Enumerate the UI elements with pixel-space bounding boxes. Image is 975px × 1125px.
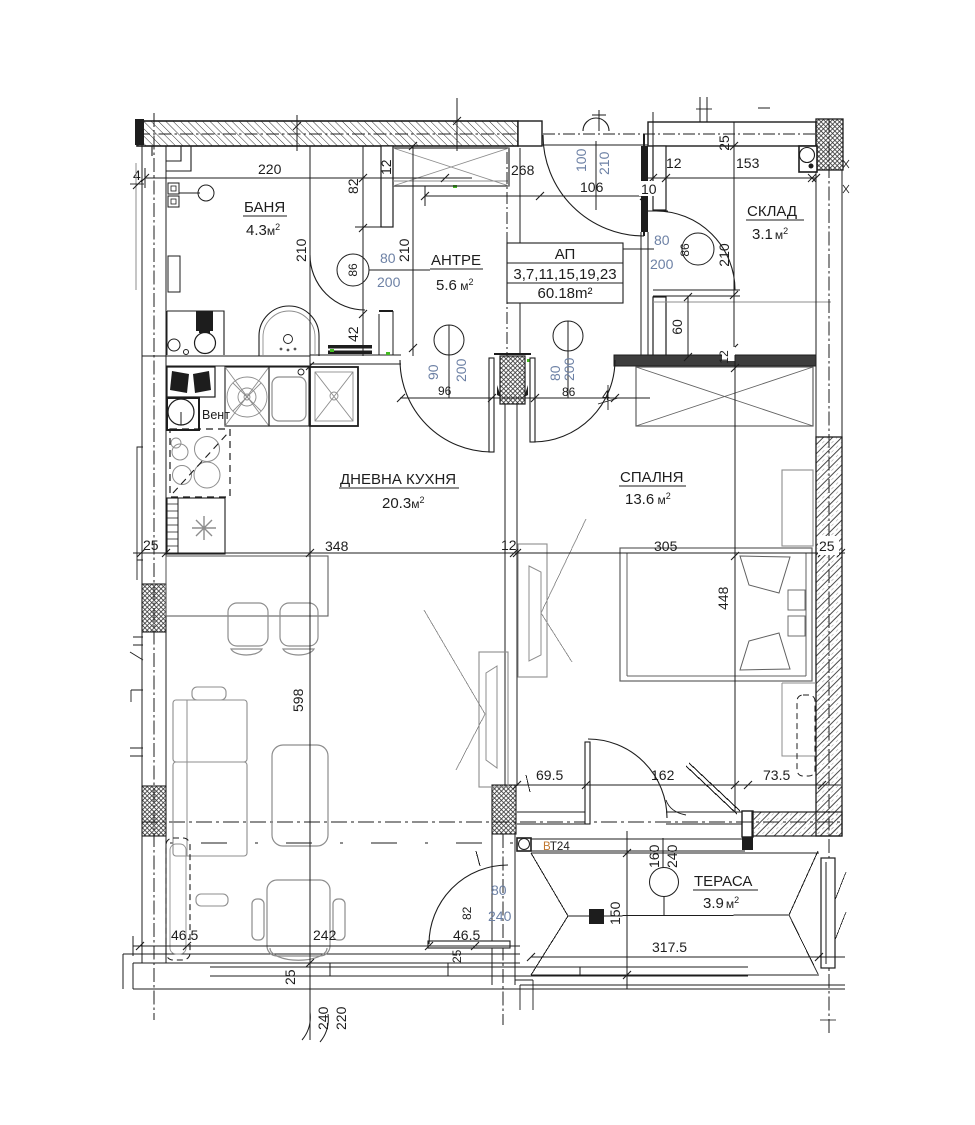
svg-text:106: 106 xyxy=(580,179,604,195)
svg-text:200: 200 xyxy=(561,357,577,381)
svg-text:210: 210 xyxy=(293,238,309,262)
svg-text:ТЕРАСА: ТЕРАСА xyxy=(694,873,752,890)
svg-text:200: 200 xyxy=(377,274,401,290)
svg-text:69.5: 69.5 xyxy=(536,767,563,783)
svg-text:12: 12 xyxy=(666,155,682,171)
svg-text:СПАЛНЯ: СПАЛНЯ xyxy=(620,469,683,486)
svg-text:СКЛАД: СКЛАД xyxy=(747,203,797,220)
svg-text:200: 200 xyxy=(650,256,674,272)
svg-text:25: 25 xyxy=(819,538,835,554)
svg-text:90: 90 xyxy=(425,364,441,380)
svg-text:210: 210 xyxy=(596,151,612,175)
svg-text:25: 25 xyxy=(450,949,464,963)
svg-text:60.18m²: 60.18m² xyxy=(537,285,592,302)
svg-text:162: 162 xyxy=(651,767,675,783)
svg-text:210: 210 xyxy=(716,243,732,267)
svg-text:160: 160 xyxy=(646,844,662,868)
svg-text:12: 12 xyxy=(717,350,731,364)
svg-text:13.6 м2: 13.6 м2 xyxy=(625,491,671,508)
svg-text:86: 86 xyxy=(678,243,692,257)
svg-text:240: 240 xyxy=(664,844,680,868)
svg-text:5.6 м2: 5.6 м2 xyxy=(436,277,473,294)
svg-text:598: 598 xyxy=(290,688,306,712)
svg-text:46.5: 46.5 xyxy=(453,927,480,943)
svg-text:42: 42 xyxy=(345,326,361,342)
svg-text:220: 220 xyxy=(333,1006,349,1030)
svg-text:73.5: 73.5 xyxy=(763,767,790,783)
svg-text:200: 200 xyxy=(453,358,469,382)
svg-text:АП: АП xyxy=(555,246,576,263)
svg-text:25: 25 xyxy=(143,537,159,553)
svg-text:96: 96 xyxy=(438,384,452,398)
svg-text:4: 4 xyxy=(133,167,141,183)
svg-text:12: 12 xyxy=(501,537,517,553)
svg-text:268: 268 xyxy=(511,162,535,178)
svg-text:Вент: Вент xyxy=(202,408,230,422)
svg-text:305: 305 xyxy=(654,538,678,554)
svg-text:БАНЯ: БАНЯ xyxy=(244,199,285,216)
svg-text:82: 82 xyxy=(345,178,361,194)
svg-text:240: 240 xyxy=(488,908,512,924)
svg-text:242: 242 xyxy=(313,927,337,943)
svg-text:80: 80 xyxy=(491,882,507,898)
svg-text:4.3м2: 4.3м2 xyxy=(246,222,280,239)
svg-text:3.1м2: 3.1м2 xyxy=(752,226,788,243)
svg-text:12: 12 xyxy=(378,159,394,175)
svg-text:86: 86 xyxy=(562,385,576,399)
svg-text:80: 80 xyxy=(654,232,670,248)
svg-text:20.3м2: 20.3м2 xyxy=(382,495,424,512)
svg-text:ВТ24: ВТ24 xyxy=(543,841,570,853)
svg-text:АНТРЕ: АНТРЕ xyxy=(431,252,481,269)
svg-text:150: 150 xyxy=(607,901,623,925)
svg-text:10: 10 xyxy=(641,181,657,197)
svg-text:86: 86 xyxy=(346,263,360,277)
svg-text:25: 25 xyxy=(282,969,298,985)
svg-text:317.5: 317.5 xyxy=(652,939,687,955)
svg-text:60: 60 xyxy=(669,319,685,335)
svg-text:3.9м2: 3.9м2 xyxy=(703,895,739,912)
svg-text:82: 82 xyxy=(460,906,474,920)
svg-text:80: 80 xyxy=(380,250,396,266)
svg-text:348: 348 xyxy=(325,538,349,554)
svg-text:25: 25 xyxy=(716,135,732,151)
svg-text:210: 210 xyxy=(396,238,412,262)
svg-text:100: 100 xyxy=(573,148,589,172)
svg-text:ДНЕВНА КУХНЯ: ДНЕВНА КУХНЯ xyxy=(340,471,456,488)
svg-text:153: 153 xyxy=(736,155,760,171)
svg-text:448: 448 xyxy=(715,586,731,610)
svg-text:3,7,11,15,19,23: 3,7,11,15,19,23 xyxy=(513,266,616,283)
svg-text:46.5: 46.5 xyxy=(171,927,198,943)
svg-text:220: 220 xyxy=(258,161,282,177)
